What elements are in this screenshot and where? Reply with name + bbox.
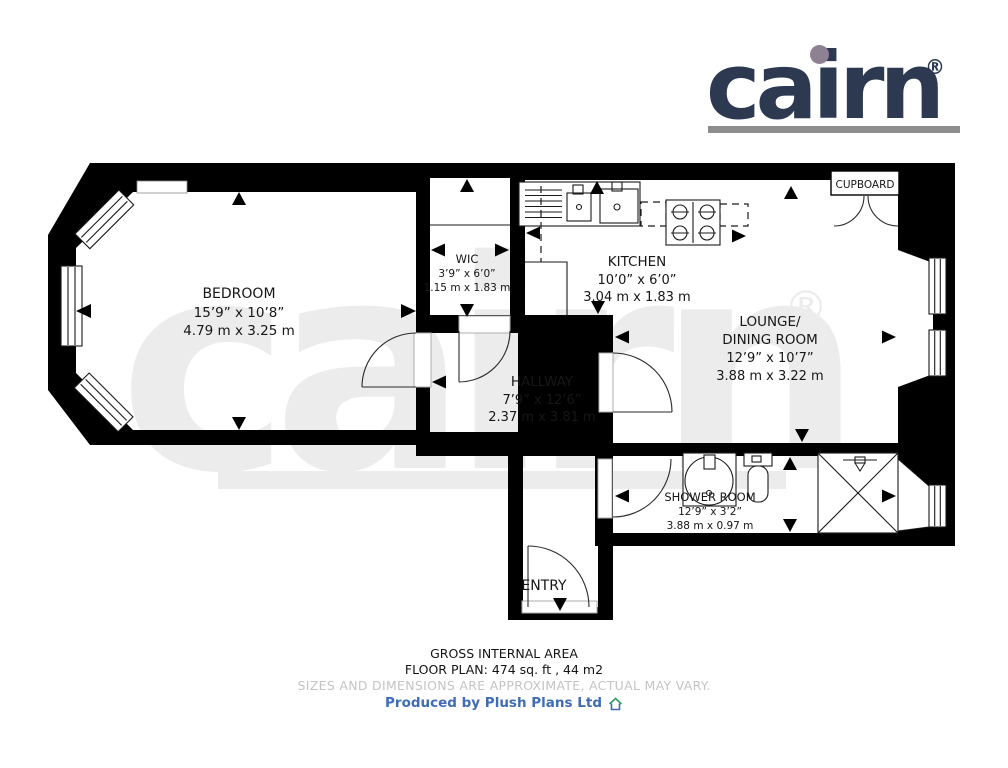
house-icon (608, 697, 623, 711)
hallway-name: HALLWAY (511, 374, 574, 390)
producer-credit: Produced by Plush Plans Ltd (0, 694, 1008, 713)
door-threshold (459, 316, 510, 333)
gross-internal-area-title: GROSS INTERNAL AREA (0, 646, 1008, 662)
shower-room-imperial: 12’9” x 3’2” (678, 506, 742, 518)
shower-room-metric: 3.88 m x 0.97 m (667, 520, 754, 532)
door-threshold (598, 459, 612, 518)
disclaimer-text: SIZES AND DIMENSIONS ARE APPROXIMATE, AC… (0, 678, 1008, 694)
hallway-imperial: 7’9” x 12’6” (502, 393, 581, 408)
lounge-imperial: 12’9” x 10’7” (726, 351, 813, 366)
kitchen-name: KITCHEN (608, 254, 667, 270)
kitchen-imperial: 10’0” x 6’0” (597, 273, 676, 288)
hallway-metric: 2.37 m x 3.81 m (488, 410, 595, 425)
kitchen-counter (519, 182, 640, 226)
stove-icon (666, 200, 720, 245)
measure-arrow (460, 179, 474, 192)
bedroom-name: BEDROOM (202, 286, 275, 302)
door-arc (528, 546, 589, 607)
wic-imperial: 3’9” x 6’0” (438, 268, 495, 280)
bedroom-metric: 4.79 m x 3.25 m (183, 323, 295, 339)
footer: GROSS INTERNAL AREA FLOOR PLAN: 474 sq. … (0, 646, 1008, 713)
lounge-metric: 3.88 m x 3.22 m (716, 369, 823, 384)
wic-metric: 1.15 m x 1.83 m (424, 282, 511, 294)
lounge-window-upper (929, 258, 946, 314)
lounge-name-line2: DINING ROOM (722, 332, 818, 348)
entry-label: ENTRY (521, 578, 567, 594)
bedroom-imperial: 15’9” x 10’8” (194, 305, 285, 321)
kitchen-metric: 3.04 m x 1.83 m (583, 290, 690, 305)
lounge-window-lower (929, 330, 946, 376)
door-threshold (599, 353, 613, 412)
wic-name: WIC (456, 252, 479, 266)
floor-plan-area-value: FLOOR PLAN: 474 sq. ft , 44 m2 (0, 662, 1008, 678)
cupboard-door-arc-right (868, 196, 898, 226)
chimney-alcove (137, 181, 187, 193)
measure-arrow (784, 186, 798, 199)
bay-window-left (61, 266, 82, 346)
producer-credit-text: Produced by Plush Plans Ltd (385, 694, 602, 713)
shower-room-name: SHOWER ROOM (664, 490, 755, 504)
door-threshold (414, 333, 431, 387)
floor-plan: cairn ® (0, 0, 1008, 640)
cupboard-label: CUPBOARD (835, 179, 894, 191)
lounge-name-line1: LOUNGE/ (739, 314, 801, 330)
measure-arrow (882, 331, 896, 344)
measure-arrow (232, 192, 246, 205)
